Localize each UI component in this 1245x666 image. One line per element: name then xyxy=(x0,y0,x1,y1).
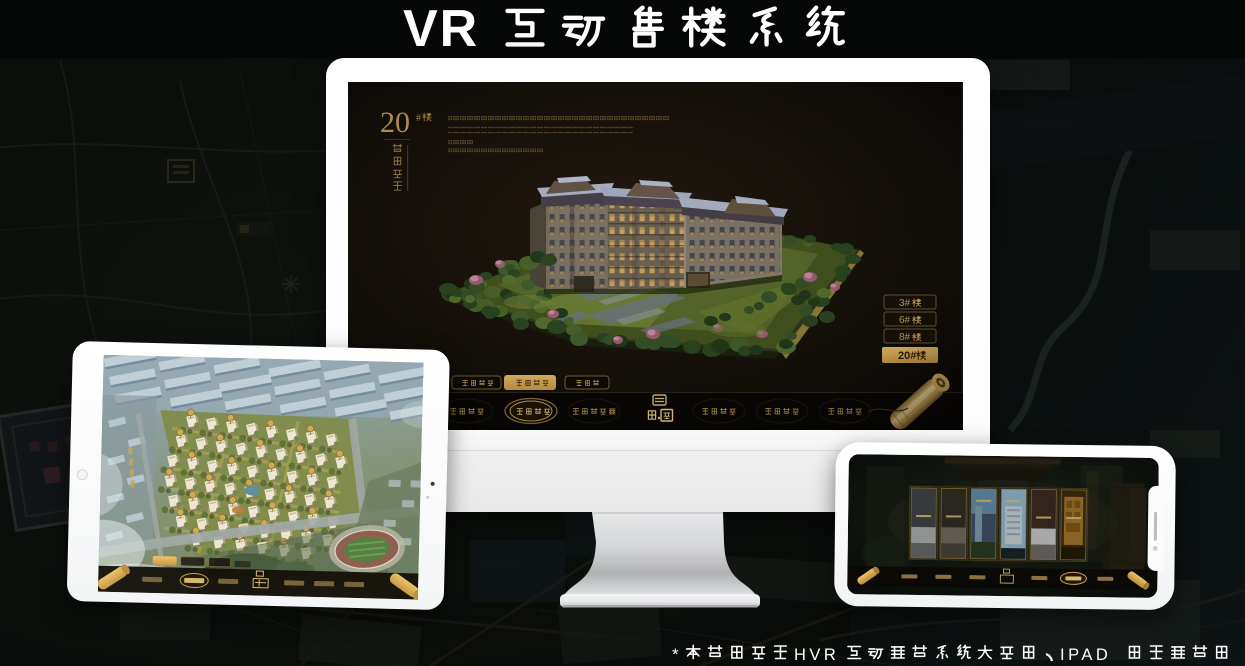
svg-text:*: * xyxy=(672,645,679,664)
svg-text:VR: VR xyxy=(403,0,479,58)
svg-text:IPAD: IPAD xyxy=(1060,646,1111,664)
svg-text:HVR: HVR xyxy=(794,646,839,664)
